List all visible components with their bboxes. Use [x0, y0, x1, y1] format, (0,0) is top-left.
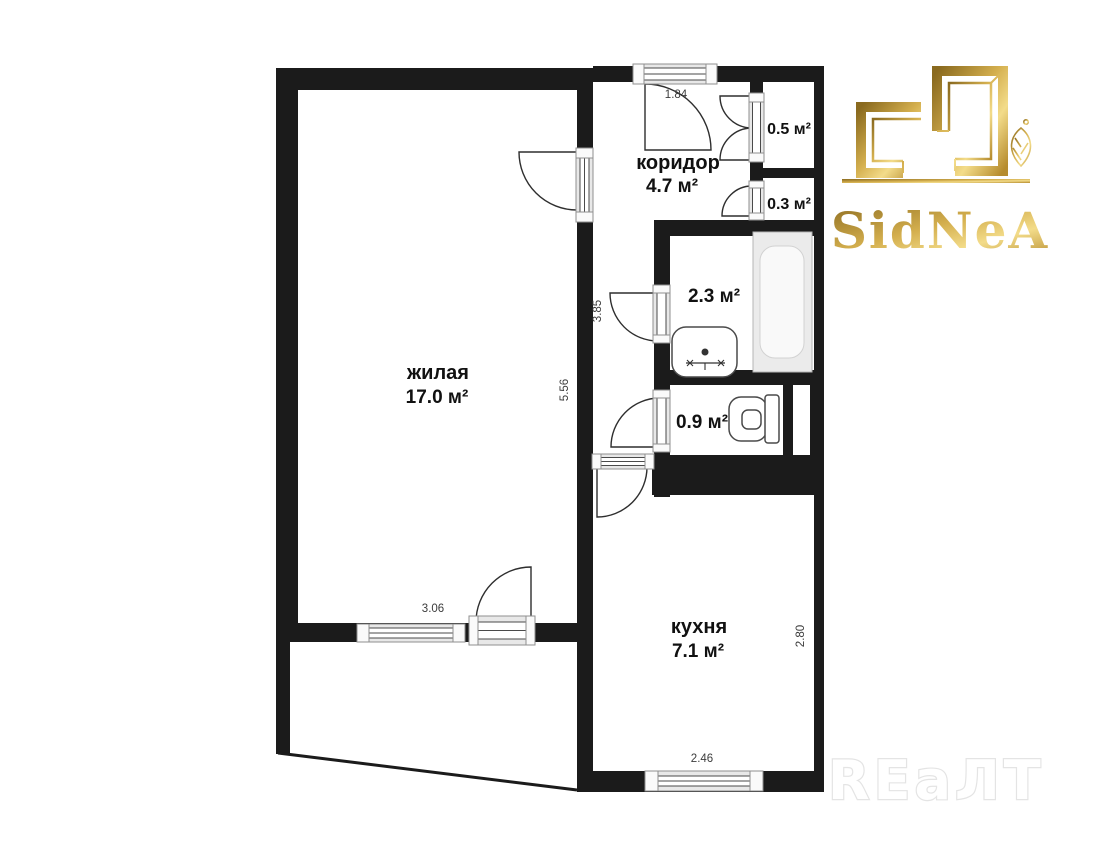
- bathroom-door-arc: [610, 293, 658, 341]
- living-window: [357, 624, 465, 642]
- logo-text: SidNeA: [831, 201, 1049, 260]
- toilet: [729, 395, 779, 443]
- tree-dot: [1024, 120, 1028, 124]
- kitchen-name: кухня: [671, 616, 727, 638]
- closet-bottom-door-frame: [749, 181, 764, 220]
- cap: [706, 64, 717, 84]
- cap: [357, 624, 369, 642]
- floor-plan-page: жилая 17.0 м² коридор 4.7 м² кухня 7.1 м…: [0, 0, 1100, 859]
- realt-watermark: REaЛT: [828, 749, 1045, 812]
- cap: [576, 212, 593, 222]
- sink-drain: [702, 349, 709, 356]
- living-room-door-arc: [519, 152, 577, 210]
- dim-entrance-width: 1.84: [665, 89, 688, 101]
- glass: [753, 188, 761, 213]
- cap: [453, 624, 465, 642]
- wall-closet-mid: [750, 168, 814, 178]
- cap: [653, 335, 670, 343]
- corridor-area: 4.7 м²: [646, 176, 698, 197]
- wall-top-right: [717, 66, 824, 82]
- cap: [633, 64, 644, 84]
- dim-kitchen-length: 2.80: [795, 625, 807, 647]
- entrance-door-frame: [633, 64, 717, 84]
- toilet-seat: [742, 410, 761, 429]
- toilet-door-arc: [611, 398, 659, 447]
- wall-balcony-left: [276, 642, 290, 754]
- closet-top-door-lower-arc: [720, 128, 752, 160]
- sidnea-logo: SidNeA: [831, 71, 1049, 260]
- cap: [576, 148, 593, 158]
- dim-kitchen-window-width: 2.46: [691, 753, 713, 765]
- bathtub: [753, 232, 812, 372]
- balcony-edge-slant: [278, 753, 577, 790]
- logo-mark-right: [937, 71, 1003, 171]
- cap: [645, 771, 658, 791]
- kitchen-door-arc: [597, 467, 647, 517]
- dim-corridor-length: 3.85: [592, 300, 604, 322]
- glass: [657, 293, 666, 335]
- cap: [653, 444, 670, 452]
- wall-shaft-right: [810, 385, 814, 455]
- glass: [753, 102, 761, 153]
- closet-top-door-upper-arc: [720, 96, 752, 128]
- dim-living-length: 5.56: [559, 379, 571, 401]
- corridor-name: коридор: [636, 152, 720, 174]
- balcony-door-arc: [476, 567, 531, 622]
- wall-right-outer: [814, 66, 824, 792]
- logo-mark-left: [861, 107, 921, 173]
- logo-mark-left-inner: [873, 119, 921, 161]
- wall-top-corridor-stub: [593, 66, 633, 82]
- cap: [749, 181, 764, 188]
- closet-bottom-area: 0.3 м²: [767, 196, 811, 213]
- cap: [749, 153, 764, 162]
- living-room-name: жилая: [406, 362, 469, 384]
- cap: [750, 771, 763, 791]
- bathtub-basin: [760, 246, 804, 358]
- bathroom-door-frame: [653, 285, 670, 343]
- wall-left: [276, 68, 298, 642]
- kitchen-window: [645, 771, 763, 791]
- wall-toilet-right: [783, 385, 793, 455]
- living-door-frame: [576, 148, 593, 222]
- logo-mark-icon: [861, 71, 1003, 173]
- logo-underline: [842, 179, 1030, 183]
- closet-top-door-frame: [749, 93, 764, 162]
- cap: [592, 454, 601, 469]
- cap: [526, 616, 535, 645]
- kitchen-area: 7.1 м²: [672, 641, 724, 662]
- closet-top-area: 0.5 м²: [767, 121, 811, 138]
- wall-top-living: [276, 68, 593, 90]
- living-room-area: 17.0 м²: [406, 387, 469, 408]
- cap: [749, 213, 764, 220]
- toilet-door-frame: [653, 390, 670, 452]
- bathroom-area: 2.3 м²: [688, 286, 740, 307]
- floor-plan-svg: жилая 17.0 м² коридор 4.7 м² кухня 7.1 м…: [0, 0, 1100, 859]
- kitchen-door-frame: [592, 454, 654, 469]
- cap: [469, 616, 478, 645]
- cap: [645, 454, 654, 469]
- cap: [653, 390, 670, 398]
- logo-mark-connectors: [903, 71, 1003, 173]
- closet-bottom-door-arc: [722, 186, 752, 216]
- toilet-tank: [765, 395, 779, 443]
- dim-living-width: 3.06: [422, 603, 444, 615]
- logo-mark-right-inner: [949, 83, 991, 159]
- sink: [672, 327, 737, 377]
- glass: [657, 398, 666, 444]
- wall-south-band: [652, 455, 814, 495]
- logo-tree-icon: [1012, 120, 1031, 183]
- cap: [749, 93, 764, 102]
- balcony-door-frame: [469, 616, 535, 645]
- cap: [653, 285, 670, 293]
- toilet-area: 0.9 м²: [676, 412, 728, 433]
